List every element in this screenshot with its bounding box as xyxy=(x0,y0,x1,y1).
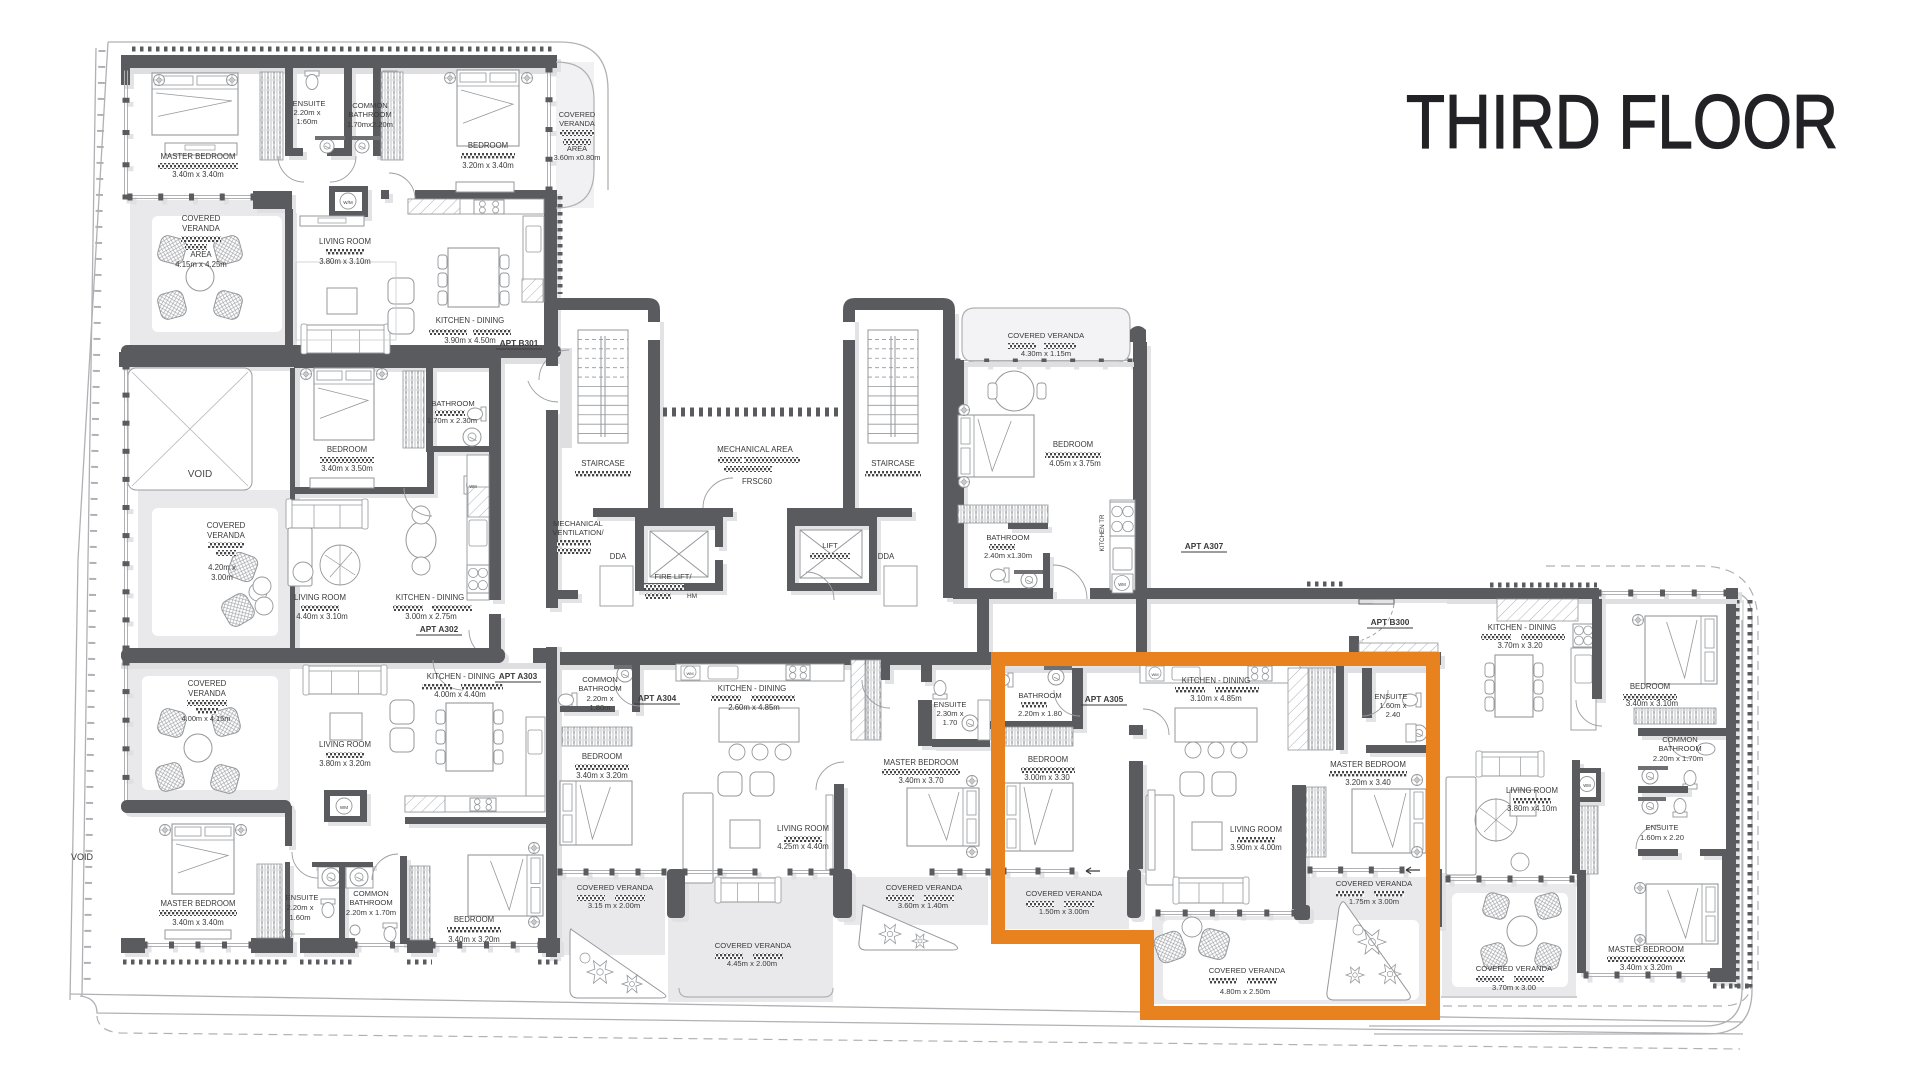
svg-text:3.10m x 4.85m: 3.10m x 4.85m xyxy=(1190,694,1242,703)
svg-text:3.20m x 3.40m: 3.20m x 3.40m xyxy=(462,161,514,170)
svg-text:BATHROOM: BATHROOM xyxy=(578,684,621,693)
svg-text:1.80m: 1.80m xyxy=(589,703,610,712)
svg-text:DDA: DDA xyxy=(610,552,627,561)
svg-text:2.60m x 4.85m: 2.60m x 4.85m xyxy=(728,703,780,712)
svg-text:2.20m x 1.80: 2.20m x 1.80 xyxy=(1018,709,1062,718)
svg-text:BATHROOM: BATHROOM xyxy=(986,533,1029,542)
svg-text:AREA: AREA xyxy=(567,144,587,153)
svg-text:BATHROOM: BATHROOM xyxy=(1018,691,1061,700)
svg-text:MASTER BEDROOM: MASTER BEDROOM xyxy=(1608,945,1684,954)
svg-text:MASTER BEDROOM: MASTER BEDROOM xyxy=(161,899,236,908)
svg-text:4.00m x 4.40m: 4.00m x 4.40m xyxy=(434,690,486,699)
svg-text:3.00m: 3.00m xyxy=(211,573,233,582)
svg-text:ENSUITE: ENSUITE xyxy=(286,893,319,902)
svg-text:COVERED: COVERED xyxy=(188,679,227,688)
svg-text:HM: HM xyxy=(687,593,697,600)
svg-text:COVERED: COVERED xyxy=(207,521,246,530)
svg-text:BEDROOM: BEDROOM xyxy=(1053,440,1093,449)
svg-text:ENSUITE: ENSUITE xyxy=(1646,823,1679,832)
svg-text:BEDROOM: BEDROOM xyxy=(468,141,508,150)
svg-text:2.20m x 1.70m: 2.20m x 1.70m xyxy=(1653,754,1703,763)
svg-text:WM: WM xyxy=(1583,783,1591,788)
svg-text:LIFT: LIFT xyxy=(822,541,838,550)
svg-text:WM: WM xyxy=(1118,582,1126,587)
svg-text:LIVING ROOM: LIVING ROOM xyxy=(777,824,829,833)
svg-text:3.40m x 3.40m: 3.40m x 3.40m xyxy=(172,170,224,179)
svg-text:COMMON: COMMON xyxy=(353,889,388,898)
svg-text:COVERED VERANDA: COVERED VERANDA xyxy=(1026,889,1103,898)
svg-text:BATHROOM: BATHROOM xyxy=(1658,744,1701,753)
svg-text:1.50m x 3.00m: 1.50m x 3.00m xyxy=(1039,907,1089,916)
svg-text:AREA: AREA xyxy=(190,250,212,259)
svg-text:ENSUITE: ENSUITE xyxy=(934,700,967,709)
svg-text:4.05m x 3.75m: 4.05m x 3.75m xyxy=(1049,459,1101,468)
svg-text:VERANDA: VERANDA xyxy=(559,119,595,128)
svg-text:WM: WM xyxy=(686,671,693,676)
svg-text:VERANDA: VERANDA xyxy=(182,224,220,233)
svg-text:VOID: VOID xyxy=(188,469,212,480)
svg-text:KITCHEN - DINING: KITCHEN - DINING xyxy=(1488,623,1556,632)
svg-text:APT A305: APT A305 xyxy=(1085,694,1124,704)
svg-text:COVERED VERANDA: COVERED VERANDA xyxy=(886,883,963,892)
svg-text:FIRE LIFT/: FIRE LIFT/ xyxy=(654,572,692,581)
svg-text:APT B300: APT B300 xyxy=(1371,617,1410,627)
svg-text:MECHANICAL AREA: MECHANICAL AREA xyxy=(717,445,793,454)
svg-text:KITCHEN - DINING: KITCHEN - DINING xyxy=(396,593,464,602)
svg-text:KITCHEN - DINING: KITCHEN - DINING xyxy=(718,684,786,693)
svg-text:3.90m x 4.50m: 3.90m x 4.50m xyxy=(444,336,496,345)
svg-text:3.40m x 3.20m: 3.40m x 3.20m xyxy=(576,771,628,780)
svg-text:4.40m x 3.10m: 4.40m x 3.10m xyxy=(296,612,348,621)
svg-text:1:60m: 1:60m xyxy=(296,117,317,126)
svg-text:APT A307: APT A307 xyxy=(1185,541,1224,551)
svg-text:4.15m x 4.25m: 4.15m x 4.25m xyxy=(175,260,227,269)
svg-text:4.25m x 4.40m: 4.25m x 4.40m xyxy=(777,842,829,851)
svg-text:COVERED VERANDA: COVERED VERANDA xyxy=(1209,966,1286,975)
svg-text:LIVING ROOM: LIVING ROOM xyxy=(294,593,346,602)
svg-text:4.20m x: 4.20m x xyxy=(208,563,236,572)
svg-text:BEDROOM: BEDROOM xyxy=(327,445,367,454)
svg-text:1.60m x 2.20: 1.60m x 2.20 xyxy=(1640,833,1684,842)
svg-text:3.00m x 3.30: 3.00m x 3.30 xyxy=(1024,773,1070,782)
svg-text:KITCHEN - DINING: KITCHEN - DINING xyxy=(1182,676,1250,685)
svg-text:COVERED: COVERED xyxy=(559,110,596,119)
svg-text:3.40m x 3.40m: 3.40m x 3.40m xyxy=(172,918,224,927)
svg-text:3.40m x 3.20m: 3.40m x 3.20m xyxy=(448,935,500,944)
svg-text:COMMON: COMMON xyxy=(582,675,617,684)
svg-text:3.70m x 3.20: 3.70m x 3.20 xyxy=(1497,641,1543,650)
svg-text:3.80m x 3.20m: 3.80m x 3.20m xyxy=(319,759,371,768)
svg-text:3.00m x 2.75m: 3.00m x 2.75m xyxy=(405,612,457,621)
svg-text:STAIRCASE: STAIRCASE xyxy=(581,459,625,468)
svg-text:3.20m x 3.40: 3.20m x 3.40 xyxy=(1345,778,1391,787)
svg-text:KITCHEN - DINING: KITCHEN - DINING xyxy=(427,672,495,681)
svg-text:BEDROOM: BEDROOM xyxy=(454,915,494,924)
svg-text:MECHANICAL: MECHANICAL xyxy=(553,519,603,528)
svg-text:LIVING ROOM: LIVING ROOM xyxy=(1506,786,1558,795)
svg-text:COVERED VERANDA: COVERED VERANDA xyxy=(1336,879,1413,888)
svg-text:1.75m x 3.00m: 1.75m x 3.00m xyxy=(1349,897,1399,906)
svg-text:3.40m x 3.20m: 3.40m x 3.20m xyxy=(1620,963,1673,972)
svg-text:3.70m x 3.00: 3.70m x 3.00 xyxy=(1492,983,1536,992)
svg-text:2.20m x: 2.20m x xyxy=(586,694,613,703)
svg-text:BEDROOM: BEDROOM xyxy=(582,752,622,761)
svg-text:2.40m x1.30m: 2.40m x1.30m xyxy=(984,551,1032,560)
svg-text:APT A302: APT A302 xyxy=(420,624,459,634)
svg-text:VERANDA: VERANDA xyxy=(188,689,226,698)
svg-text:COVERED: COVERED xyxy=(182,214,221,223)
svg-text:COVERED VERANDA: COVERED VERANDA xyxy=(1008,331,1085,340)
svg-text:1.70m x 2.30m: 1.70m x 2.30m xyxy=(427,416,477,425)
svg-text:3.80m x4.10m: 3.80m x4.10m xyxy=(1507,804,1557,813)
svg-text:1.60m: 1.60m xyxy=(289,913,310,922)
svg-text:2.20m x: 2.20m x xyxy=(286,903,313,912)
svg-text:4.30m x 1.15m: 4.30m x 1.15m xyxy=(1021,349,1071,358)
svg-text:COMMON: COMMON xyxy=(1662,735,1697,744)
svg-text:3.40m x 3.10m: 3.40m x 3.10m xyxy=(1626,699,1679,708)
svg-text:BEDROOM: BEDROOM xyxy=(1630,682,1670,691)
svg-text:1.70: 1.70 xyxy=(943,718,958,727)
svg-text:MASTER BEDROOM: MASTER BEDROOM xyxy=(1330,760,1406,769)
svg-text:LIVING ROOM: LIVING ROOM xyxy=(319,237,371,246)
svg-text:MASTER BEDROOM: MASTER BEDROOM xyxy=(161,152,236,161)
svg-text:COVERED VERANDA: COVERED VERANDA xyxy=(715,941,792,950)
svg-text:WM: WM xyxy=(469,484,477,489)
svg-text:THIRD FLOOR: THIRD FLOOR xyxy=(1406,80,1838,165)
svg-text:COVERED VERANDA: COVERED VERANDA xyxy=(577,883,654,892)
svg-text:4.80m x 2.50m: 4.80m x 2.50m xyxy=(1220,987,1270,996)
svg-text:COVERED VERANDA: COVERED VERANDA xyxy=(1476,964,1553,973)
svg-text:3.60m x 1.40m: 3.60m x 1.40m xyxy=(898,901,948,910)
svg-text:LIVING ROOM: LIVING ROOM xyxy=(319,740,371,749)
svg-text:ENSUITE: ENSUITE xyxy=(293,99,326,108)
svg-text:APT A304: APT A304 xyxy=(638,693,677,703)
svg-text:WM: WM xyxy=(1151,672,1158,677)
svg-text:FRSC60: FRSC60 xyxy=(742,477,773,486)
svg-text:3.80m x 3.10m: 3.80m x 3.10m xyxy=(319,257,371,266)
svg-text:3.40m x 3.50m: 3.40m x 3.50m xyxy=(321,464,373,473)
svg-text:4.00m x 4.15m: 4.00m x 4.15m xyxy=(182,714,231,723)
svg-text:2.20m x: 2.20m x xyxy=(293,108,320,117)
svg-text:VENTILATION/: VENTILATION/ xyxy=(552,528,604,537)
svg-text:MASTER BEDROOM: MASTER BEDROOM xyxy=(884,758,959,767)
svg-text:2.40: 2.40 xyxy=(1386,710,1401,719)
svg-text:1.60m x: 1.60m x xyxy=(1379,701,1406,710)
svg-text:KITCHEN TR: KITCHEN TR xyxy=(1099,514,1106,552)
svg-text:DDA: DDA xyxy=(878,552,895,561)
svg-text:LIVING ROOM: LIVING ROOM xyxy=(1230,825,1282,834)
svg-text:2.30m x: 2.30m x xyxy=(936,709,963,718)
svg-text:VERANDA: VERANDA xyxy=(207,531,245,540)
svg-text:4.45m x 2.00m: 4.45m x 2.00m xyxy=(727,959,777,968)
svg-text:1.70mx2.20m: 1.70mx2.20m xyxy=(347,120,393,129)
svg-text:BATHROOM: BATHROOM xyxy=(348,110,391,119)
svg-text:KITCHEN - DINING: KITCHEN - DINING xyxy=(436,316,504,325)
svg-text:WM: WM xyxy=(340,805,348,810)
svg-text:ENSUITE: ENSUITE xyxy=(1375,692,1408,701)
svg-text:COMMON: COMMON xyxy=(352,101,387,110)
svg-text:APT B301: APT B301 xyxy=(500,338,539,348)
svg-text:W/M: W/M xyxy=(343,200,353,205)
svg-text:3.40m x 3.70: 3.40m x 3.70 xyxy=(898,776,944,785)
svg-text:3.90m x 4.00m: 3.90m x 4.00m xyxy=(1230,843,1282,852)
svg-text:VOID: VOID xyxy=(71,852,94,862)
svg-text:APT A303: APT A303 xyxy=(499,671,538,681)
svg-text:BEDROOM: BEDROOM xyxy=(1028,755,1068,764)
svg-text:2.20m x 1.70m: 2.20m x 1.70m xyxy=(346,908,396,917)
svg-text:3.15 m x 2.00m: 3.15 m x 2.00m xyxy=(588,901,640,910)
svg-text:3.60m x0.80m: 3.60m x0.80m xyxy=(554,153,601,162)
svg-text:BATHROOM: BATHROOM xyxy=(349,898,392,907)
svg-text:STAIRCASE: STAIRCASE xyxy=(871,459,915,468)
svg-text:BATHROOM: BATHROOM xyxy=(431,399,474,408)
